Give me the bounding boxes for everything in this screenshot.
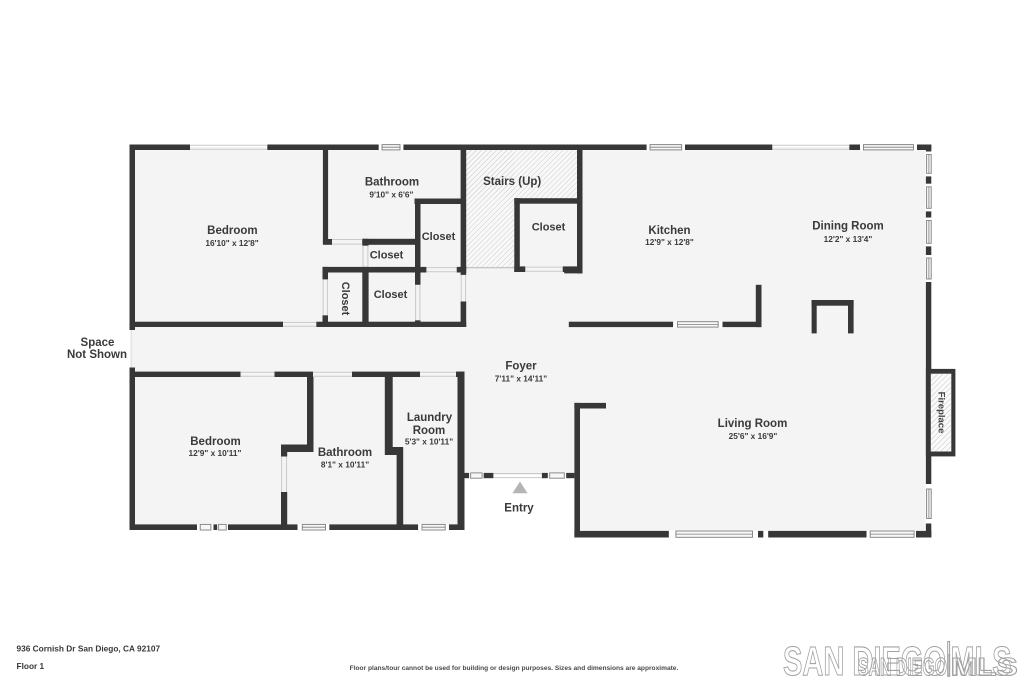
svg-text:Floor 1: Floor 1	[17, 661, 45, 671]
svg-text:Closet: Closet	[370, 249, 404, 261]
svg-text:Dining Room: Dining Room	[812, 220, 884, 232]
svg-text:16'10" x 12'8": 16'10" x 12'8"	[205, 238, 258, 248]
svg-text:Entry: Entry	[504, 502, 534, 514]
svg-text:936 Cornish Dr San Diego, CA 9: 936 Cornish Dr San Diego, CA 92107	[17, 643, 161, 653]
svg-text:SAN DIEGO: SAN DIEGO	[858, 653, 947, 681]
svg-text:Not Shown: Not Shown	[67, 349, 127, 361]
svg-text:12'9" x 10'11": 12'9" x 10'11"	[189, 448, 242, 458]
svg-text:Closet: Closet	[339, 282, 351, 316]
svg-text:Bathroom: Bathroom	[318, 447, 372, 459]
svg-text:Laundry: Laundry	[407, 412, 453, 424]
svg-text:Closet: Closet	[374, 289, 408, 301]
svg-text:Floor plans/tour cannot be use: Floor plans/tour cannot be used for buil…	[350, 665, 679, 672]
svg-text:Room: Room	[413, 425, 446, 437]
svg-text:MLS: MLS	[951, 653, 1018, 681]
svg-text:Fireplace: Fireplace	[935, 392, 946, 434]
svg-text:Bedroom: Bedroom	[207, 225, 257, 237]
svg-text:Bathroom: Bathroom	[365, 177, 419, 189]
svg-text:Closet: Closet	[422, 231, 456, 243]
svg-text:Foyer: Foyer	[505, 360, 537, 372]
svg-text:5'3" x 10'11": 5'3" x 10'11"	[405, 437, 453, 447]
svg-text:7'11" x 14'11": 7'11" x 14'11"	[495, 373, 547, 383]
svg-text:9'10" x 6'6": 9'10" x 6'6"	[369, 190, 413, 200]
svg-text:25'6" x 16'9": 25'6" x 16'9"	[729, 431, 778, 441]
svg-text:Bedroom: Bedroom	[190, 436, 240, 448]
svg-text:Closet: Closet	[532, 221, 566, 233]
svg-text:Stairs (Up): Stairs (Up)	[483, 176, 541, 188]
svg-text:12'2" x 13'4": 12'2" x 13'4"	[824, 234, 873, 244]
svg-text:Living Room: Living Room	[718, 418, 788, 430]
svg-text:Space: Space	[81, 337, 115, 349]
svg-text:8'1" x 10'11": 8'1" x 10'11"	[321, 460, 369, 470]
svg-text:Kitchen: Kitchen	[648, 225, 690, 237]
svg-text:12'9" x 12'8": 12'9" x 12'8"	[645, 237, 694, 247]
